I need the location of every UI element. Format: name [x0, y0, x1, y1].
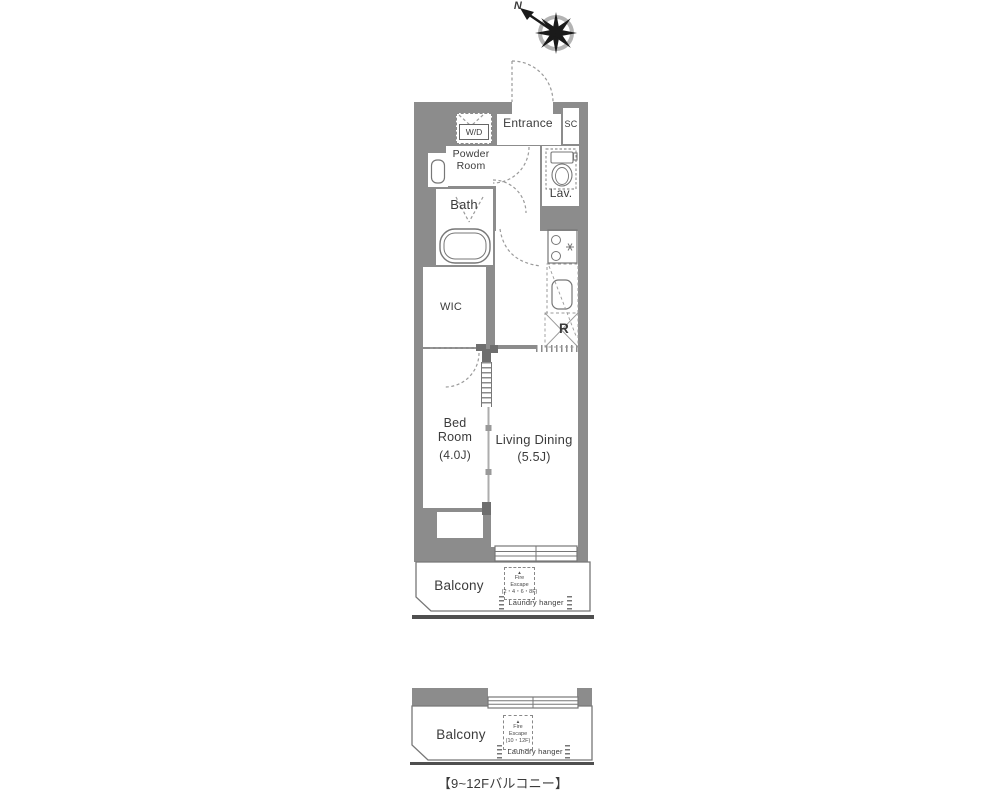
- entrance-door-arc: [512, 61, 553, 102]
- lower-laundry-hanger-label: Laundry hanger: [504, 748, 566, 756]
- laundry-mark-left: [499, 596, 504, 610]
- stove-icon: [548, 230, 577, 263]
- fire-line2: Escape: [509, 731, 527, 738]
- powder-door-arc: [493, 147, 529, 183]
- bedroom-size: (4.0J): [426, 449, 484, 462]
- bedroom-label: Bed Room: [428, 416, 482, 444]
- lower-fire-escape-hatch: ▲ Fire Escape (10・12F): [503, 715, 533, 750]
- fire-line2: Escape: [510, 582, 528, 589]
- lavatory-door-arc: [493, 180, 526, 213]
- bathtub-icon: [440, 229, 490, 263]
- wic-label: WIC: [436, 301, 466, 313]
- living-window: [495, 546, 577, 561]
- lower-balcony-window: [488, 697, 578, 708]
- bedroom-door-arc: [445, 353, 479, 387]
- compass-north-label: N: [511, 0, 525, 12]
- lower-balcony-label: Balcony: [435, 727, 487, 742]
- washbasin-icon: [432, 160, 445, 183]
- fire-line3: (2・4・6・8F): [502, 589, 538, 596]
- compass-rose-icon: [520, 8, 577, 54]
- living-dining-size: (5.5J): [492, 450, 576, 464]
- washer-dryer-label: W/D: [459, 124, 489, 140]
- fire-line1: Fire: [515, 575, 524, 582]
- main-balcony-label: Balcony: [433, 578, 485, 593]
- refrigerator-label: R: [555, 321, 573, 336]
- lavatory-label: Lav.: [545, 187, 577, 200]
- laundry-mark-left: [497, 745, 502, 759]
- laundry-mark-right: [567, 596, 572, 610]
- toilet-icon: [546, 149, 577, 189]
- main-laundry-hanger-label: Laundry hanger: [505, 599, 567, 607]
- living-dining-label: Living Dining: [492, 433, 576, 448]
- bath-label: Bath: [441, 198, 487, 213]
- kitchen-door-arc: [500, 229, 541, 266]
- shoe-closet-label: SC: [563, 119, 579, 129]
- door-swing-arcs: [430, 61, 553, 387]
- entrance-label: Entrance: [500, 117, 556, 130]
- fire-line1: Fire: [513, 724, 522, 731]
- main-fire-escape-hatch: ▲ Fire Escape (2・4・6・8F): [504, 567, 535, 600]
- powder-room-label: Powder Room: [447, 149, 495, 173]
- plan-caption: 【9~12Fバルコニー】: [420, 777, 586, 792]
- fire-line3: (10・12F): [506, 738, 531, 745]
- floor-plan-image: N Entrance SC W/D Powder Room Bath Lav. …: [0, 0, 999, 801]
